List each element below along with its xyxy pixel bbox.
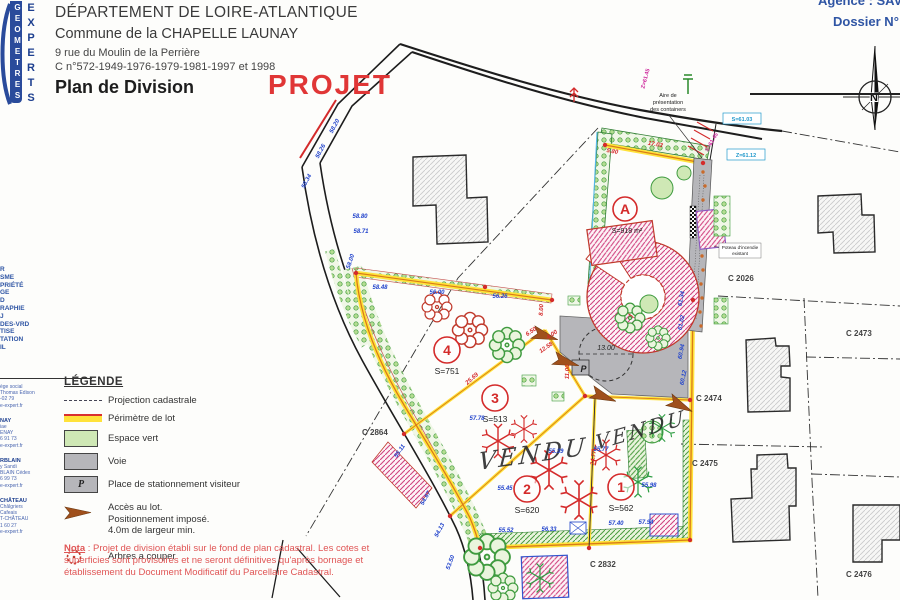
- lot-a-number: A: [620, 201, 630, 217]
- lot-2-number: 2: [523, 481, 531, 497]
- lot-4-surface: S=751: [435, 366, 460, 376]
- office-block: NAY iae ENAY 6 91 73 e-expert.fr: [0, 418, 35, 449]
- lot-3-number: 3: [491, 390, 499, 406]
- containers-line1: Aire de: [659, 93, 676, 99]
- legend-label: Périmètre de lot: [108, 413, 175, 425]
- parcel-c2476: C 2476: [846, 570, 872, 579]
- svg-text:Z=61.12: Z=61.12: [736, 153, 756, 159]
- svg-text:56.33: 56.33: [541, 527, 557, 533]
- svg-text:58.80: 58.80: [352, 214, 368, 220]
- legend-item-espace-vert: Espace vert: [64, 430, 314, 447]
- nota-body: : Projet de division établi sur le fond …: [64, 543, 369, 578]
- svg-text:57.78: 57.78: [469, 416, 485, 422]
- lot-1-surface: S=562: [609, 503, 634, 513]
- service-item: DES-VRD: [0, 321, 29, 329]
- svg-text:55.45: 55.45: [497, 486, 513, 492]
- yellow-band-swatch: [64, 414, 102, 422]
- service-item: TISE: [0, 328, 29, 336]
- logo-experts: EXPERTS: [23, 1, 37, 107]
- parking-p-label: P: [581, 364, 588, 374]
- containers-label: Aire de présentation des containers: [650, 93, 686, 113]
- legend-item-perimetre: Périmètre de lot: [64, 413, 314, 425]
- hydrant-label: Poteau d'incendie existant: [719, 243, 761, 258]
- svg-text:55.98: 55.98: [641, 483, 657, 489]
- legend-label: Place de stationnement visiteur: [108, 479, 240, 491]
- office-line: e-expert.fr: [0, 443, 35, 449]
- service-item: RAPHIE: [0, 305, 29, 313]
- containers-line2: présentation: [653, 100, 683, 106]
- svg-text:58.00: 58.00: [346, 253, 357, 270]
- projet-stamp: PROJET: [268, 69, 392, 101]
- service-item: D: [0, 297, 29, 305]
- north-arrow: N: [843, 46, 900, 130]
- office-line: e-expert.fr: [0, 483, 35, 489]
- green-swatch: [64, 430, 98, 447]
- legend-item-voie: Voie: [64, 453, 314, 470]
- lot-4-number: 4: [443, 342, 451, 358]
- svg-text:58.48: 58.48: [372, 285, 388, 291]
- legend-item-acces: Accès au lot. Positionnement imposé. 4.0…: [64, 502, 314, 537]
- plan-de-division-document: A S=918 m² 4 S=751 3 S=513 2 S=620 1 S=5…: [0, 0, 900, 600]
- parcel-c2473: C 2473: [846, 329, 872, 338]
- header-reference-cadastrale: C n°572-1949-1976-1979-1981-1997 et 1998: [55, 61, 275, 73]
- parcel-c2864: C 2864: [362, 428, 388, 437]
- svg-text:56.26: 56.26: [492, 294, 508, 300]
- legend-title: LÉGENDE: [64, 376, 314, 388]
- legend-label: Projection cadastrale: [108, 395, 197, 407]
- sidebar-offices: ège social Thomas Edison -02 79 e-expert…: [0, 384, 35, 544]
- header-departement: DÉPARTEMENT DE LOIRE-ATLANTIQUE: [55, 4, 358, 22]
- parcel-c2475: C 2475: [692, 459, 718, 468]
- legend-label: Accès au lot.: [108, 502, 209, 514]
- lot-3-surface: S=513: [483, 414, 508, 424]
- legend-label: 4.0m de largeur min.: [108, 525, 209, 537]
- dossier-number-label: Dossier N° : S: [833, 14, 900, 29]
- svg-text:58.71: 58.71: [353, 229, 369, 235]
- service-item: J: [0, 313, 29, 321]
- agence-label: Agence : SAVE: [818, 0, 900, 8]
- logo-geometres: GEOMETRES: [10, 1, 22, 103]
- service-item: IL: [0, 344, 29, 352]
- svg-text:54.13: 54.13: [434, 522, 447, 539]
- service-item: PRIÉTÉ: [0, 282, 29, 290]
- dashed-line-swatch: [64, 400, 102, 401]
- gray-swatch: [64, 453, 98, 470]
- svg-text:58.20: 58.20: [329, 118, 342, 135]
- svg-text:55.52: 55.52: [498, 528, 514, 534]
- svg-text:11.00: 11.00: [565, 364, 572, 379]
- legend-label: Positionnement imposé.: [108, 514, 209, 526]
- parcel-c2832: C 2832: [590, 560, 616, 569]
- lot-1-number: 1: [617, 479, 625, 495]
- svg-text:34.77: 34.77: [590, 449, 598, 465]
- hydrant-line1: Poteau d'incendie: [722, 245, 759, 250]
- office-block: ège social Thomas Edison -02 79 e-expert…: [0, 384, 35, 409]
- lot-a-surface: S=918 m²: [612, 228, 643, 235]
- svg-text:8.00: 8.00: [539, 303, 545, 316]
- legend-item-stationnement: P Place de stationnement visiteur: [64, 476, 314, 493]
- lot-2-surface: S=620: [515, 505, 540, 515]
- svg-text:55.39: 55.39: [548, 449, 564, 455]
- service-item: SME: [0, 274, 29, 282]
- legend-label: Voie: [108, 456, 127, 468]
- hydrant-line2: existant: [732, 251, 749, 256]
- svg-text:Z=61.45: Z=61.45: [641, 68, 652, 89]
- header-adresse: 9 rue du Moulin de la Perrière: [55, 47, 200, 59]
- nota-text: Nota : Projet de division établi sur le …: [64, 543, 384, 579]
- service-item: GE: [0, 289, 29, 297]
- document-title: Plan de Division: [55, 77, 194, 98]
- turning-radius-label: 13.00: [597, 345, 615, 352]
- office-block: RBLAIN y Sandi BLAIN Cédex 6 99 73 e-exp…: [0, 458, 35, 489]
- parking-swatch: P: [64, 476, 98, 493]
- header-commune: Commune de la CHAPELLE LAUNAY: [55, 26, 298, 42]
- parcel-c2474: C 2474: [696, 394, 722, 403]
- svg-text:56.00: 56.00: [429, 290, 445, 296]
- svg-text:57.40: 57.40: [608, 521, 624, 527]
- svg-text:53.50: 53.50: [446, 554, 457, 571]
- office-line: e-expert.fr: [0, 403, 35, 409]
- nota-label: Nota: [64, 543, 85, 554]
- containers-line3: des containers: [650, 107, 686, 113]
- sidebar-services-list: R SME PRIÉTÉ GE D RAPHIE J DES-VRD TISE …: [0, 266, 29, 352]
- office-block: CHÂTEAU Châlgriers Cafeais T-CHÂTEAU 1 6…: [0, 498, 35, 535]
- svg-text:57.94: 57.94: [638, 520, 654, 526]
- parcel-c2026: C 2026: [728, 274, 754, 283]
- legend-label: Espace vert: [108, 433, 158, 445]
- legend-item-projection: Projection cadastrale: [64, 395, 314, 407]
- legend: LÉGENDE Projection cadastrale Périmètre …: [64, 376, 314, 567]
- title-block-rule: [750, 93, 900, 95]
- office-line: e-expert.fr: [0, 529, 35, 535]
- svg-text:S=61.03: S=61.03: [732, 117, 753, 123]
- service-item: TATION: [0, 336, 29, 344]
- service-item: R: [0, 266, 29, 274]
- access-arrow-icon: [64, 506, 92, 520]
